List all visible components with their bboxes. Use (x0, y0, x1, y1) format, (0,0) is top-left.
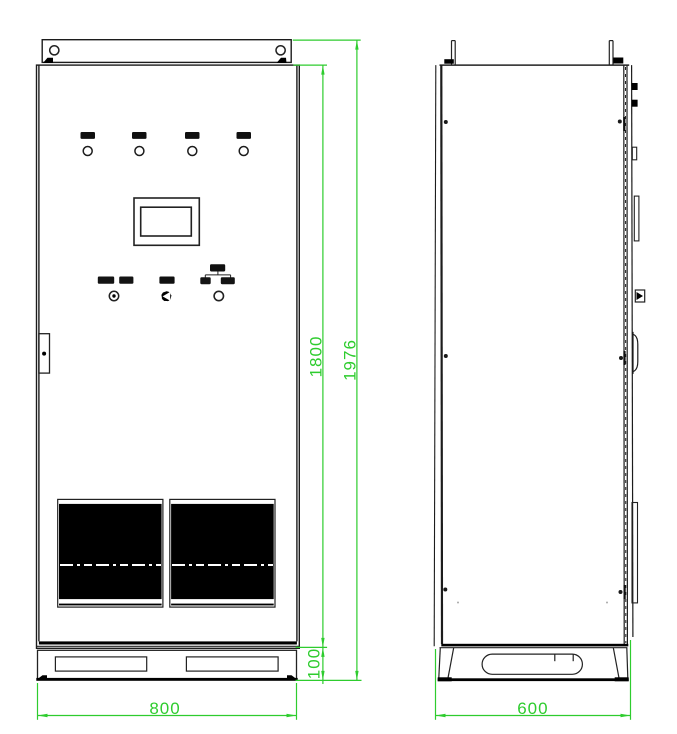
svg-text:1976: 1976 (341, 339, 360, 381)
svg-text:600: 600 (517, 699, 548, 718)
svg-text:100: 100 (305, 648, 324, 679)
svg-text:1800: 1800 (307, 336, 326, 378)
svg-text:800: 800 (149, 699, 180, 718)
